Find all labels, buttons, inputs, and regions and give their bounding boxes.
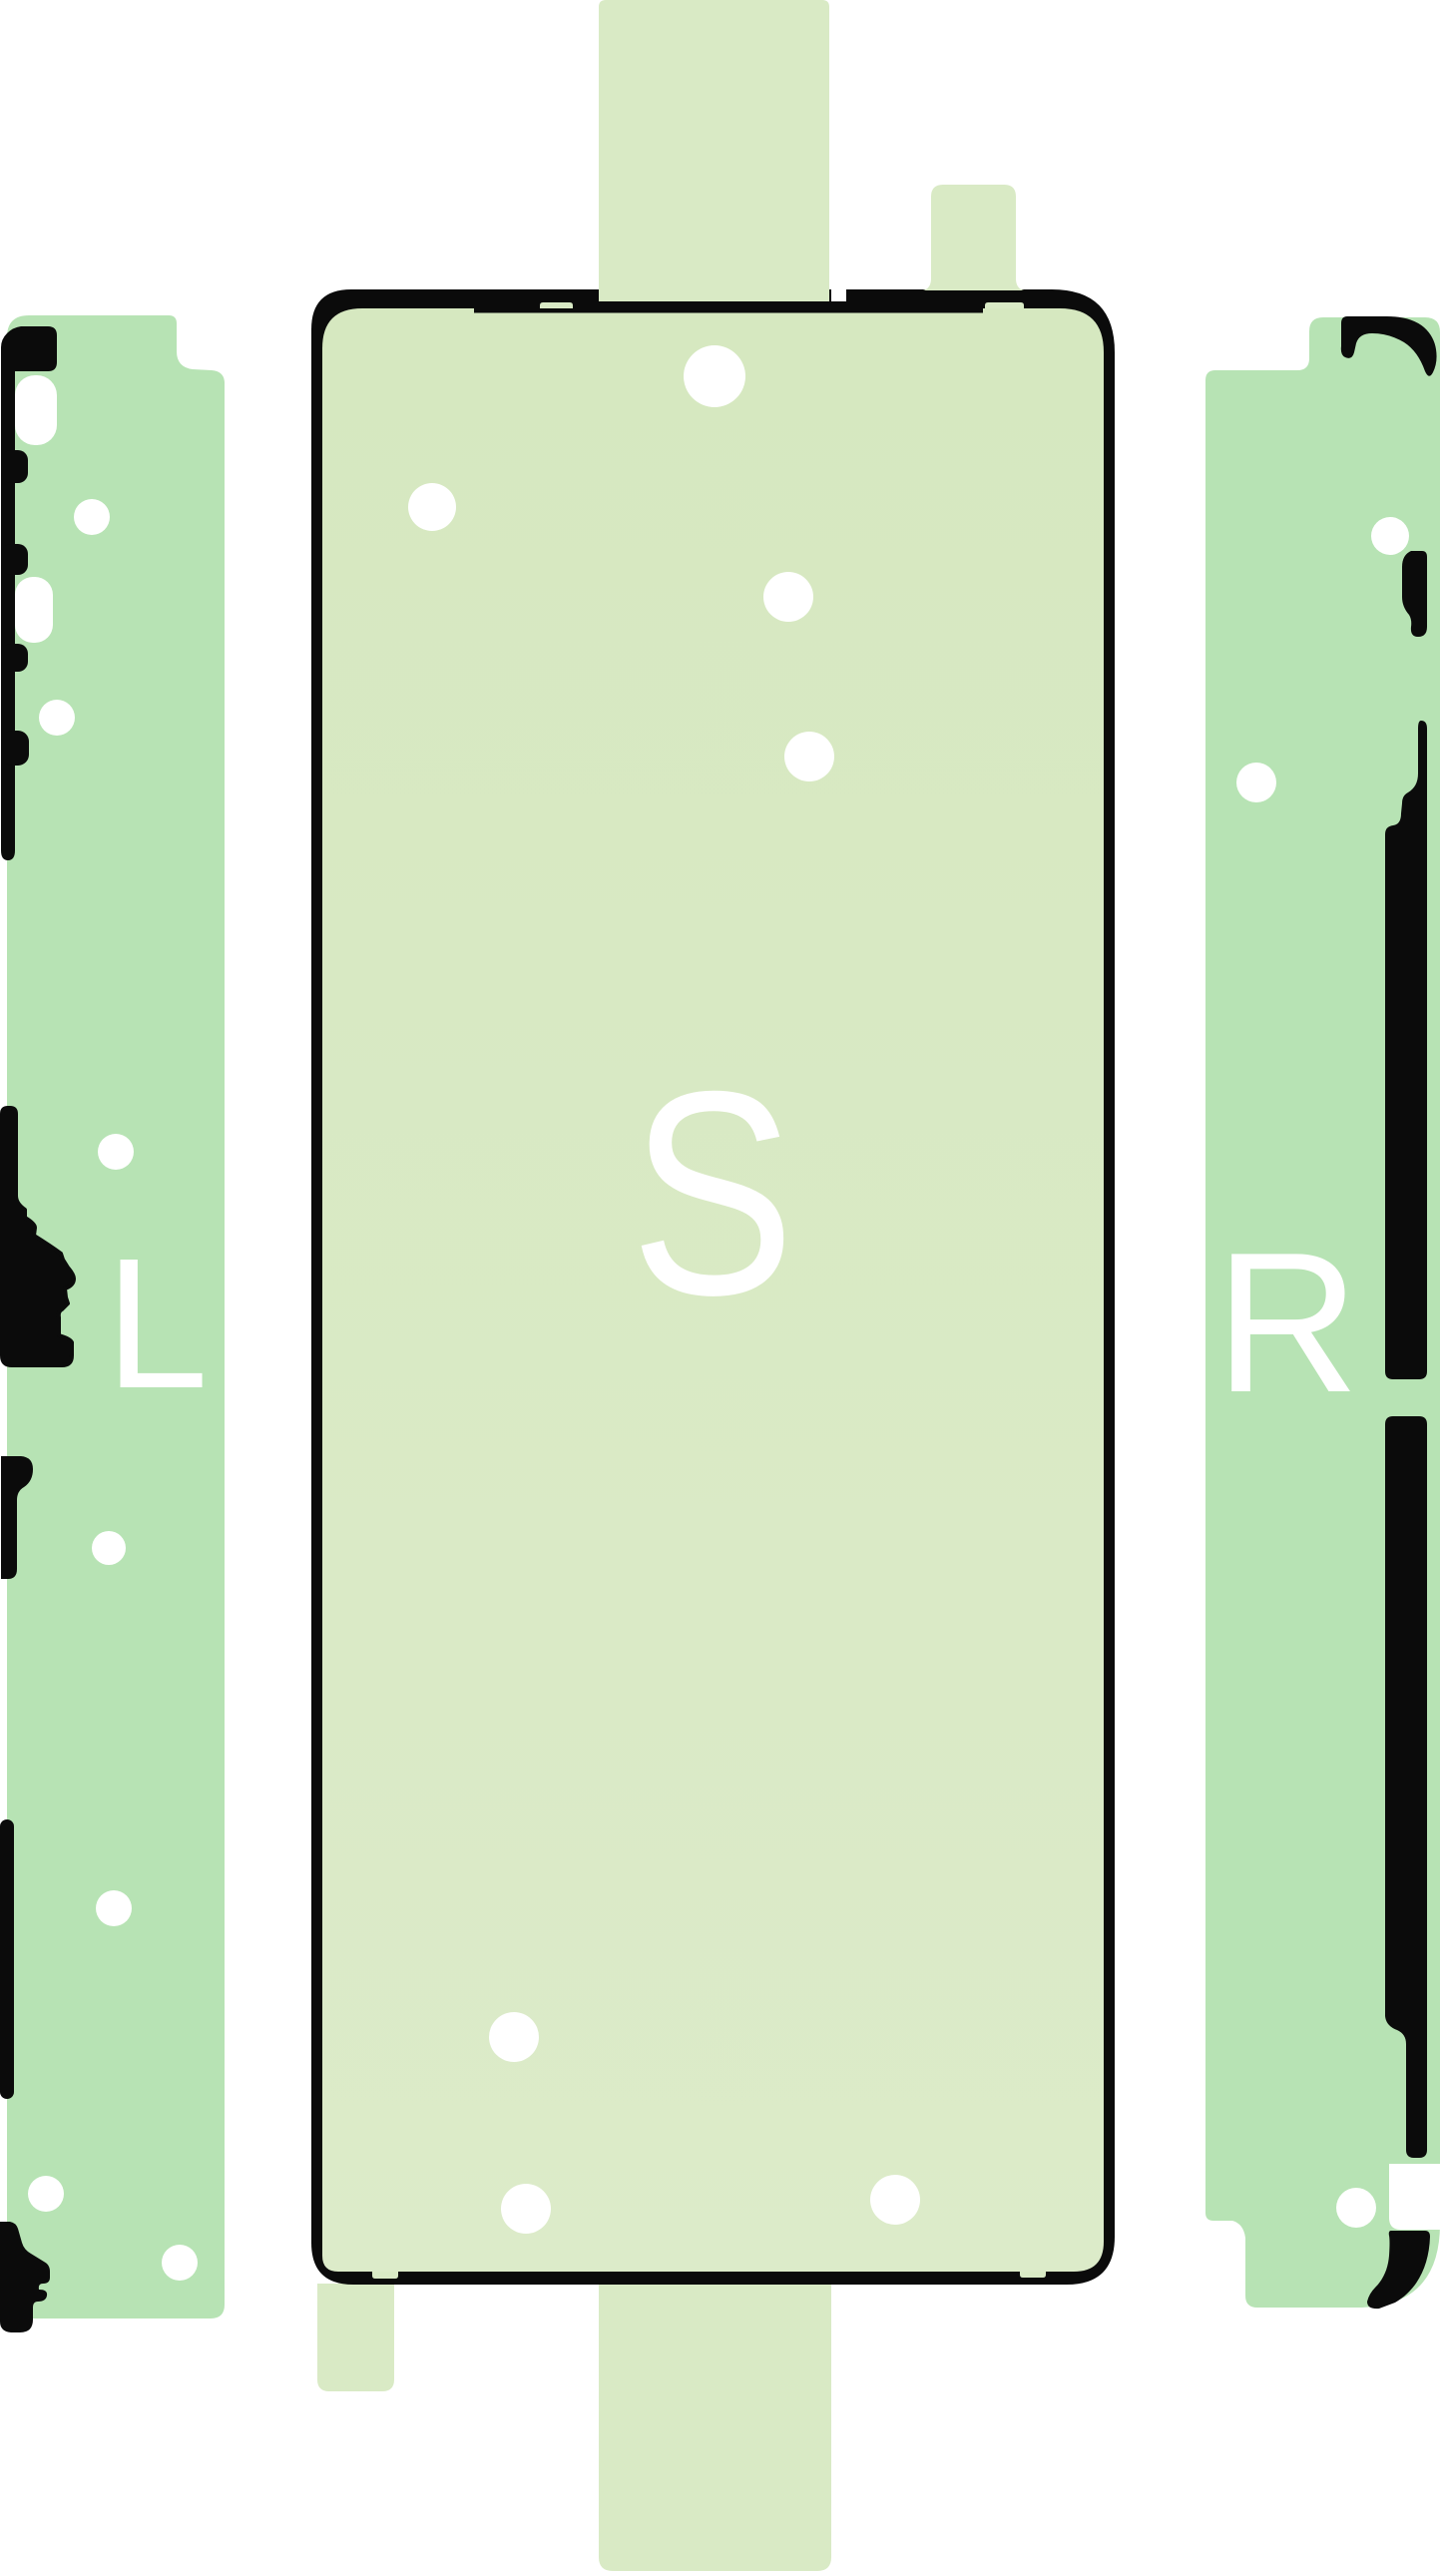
svg-text:R: R xyxy=(1215,1212,1359,1434)
svg-text:S: S xyxy=(631,1032,795,1355)
svg-text:L: L xyxy=(105,1221,208,1427)
